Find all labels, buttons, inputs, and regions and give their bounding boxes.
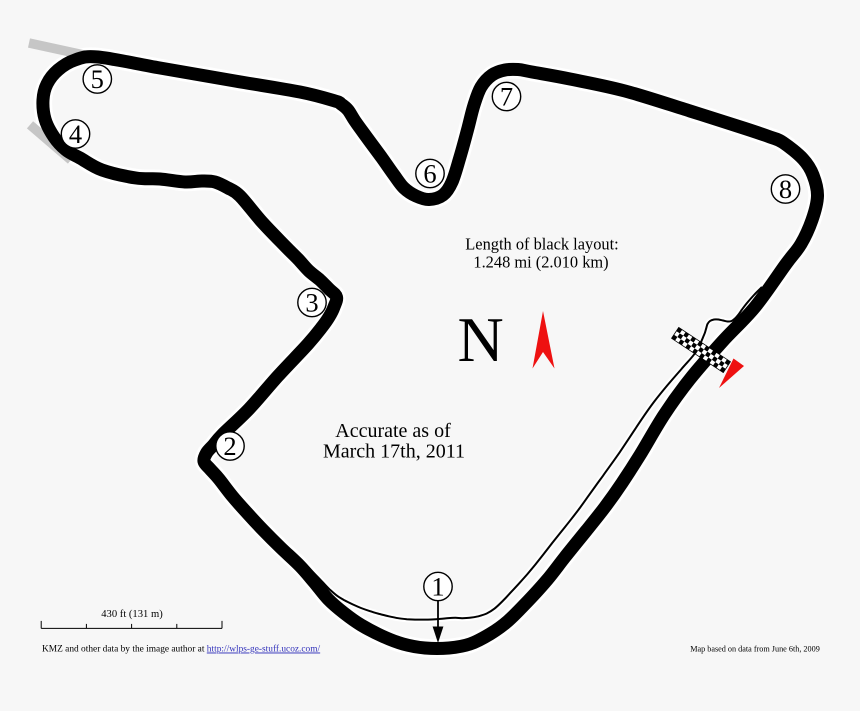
- svg-text:1.248 mi (2.010 km): 1.248 mi (2.010 km): [473, 253, 608, 272]
- svg-text:7: 7: [500, 82, 513, 112]
- svg-text:Map based on data from June 6t: Map based on data from June 6th, 2009: [690, 645, 820, 654]
- svg-text:6: 6: [423, 159, 436, 189]
- svg-text:Length of black layout:: Length of black layout:: [465, 235, 618, 254]
- svg-text:KMZ and other data by the imag: KMZ and other data by the image author a…: [42, 644, 321, 655]
- svg-text:2: 2: [223, 431, 236, 461]
- svg-text:1: 1: [431, 572, 444, 602]
- svg-text:8: 8: [779, 174, 792, 204]
- svg-text:3: 3: [305, 288, 318, 318]
- svg-text:Accurate as of: Accurate as of: [335, 420, 451, 442]
- svg-text:N: N: [458, 304, 504, 375]
- svg-text:March 17th, 2011: March 17th, 2011: [323, 441, 465, 463]
- svg-text:430 ft (131 m): 430 ft (131 m): [101, 609, 163, 620]
- svg-text:5: 5: [91, 64, 104, 94]
- svg-text:4: 4: [69, 119, 82, 149]
